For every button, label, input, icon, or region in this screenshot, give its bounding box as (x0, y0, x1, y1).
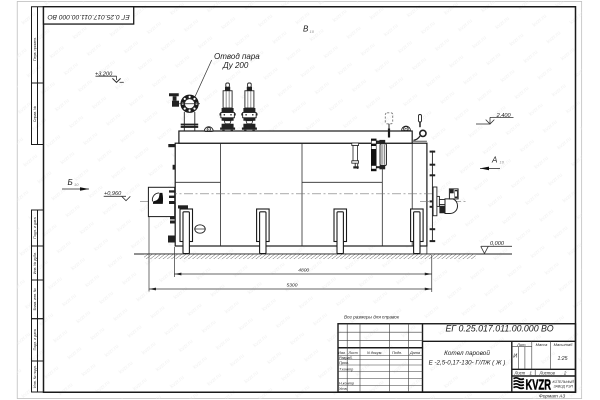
svg-text:1:25: 1:25 (557, 356, 567, 362)
svg-text:10: 10 (310, 29, 315, 34)
svg-text:Подп. и дата: Подп. и дата (33, 217, 37, 238)
svg-text:Изм.: Изм. (338, 351, 345, 355)
svg-text:Лист: Лист (514, 371, 526, 376)
svg-text:Н.контр: Н.контр (339, 381, 354, 385)
svg-text:KVZR: KVZR (526, 378, 552, 394)
svg-text:Утв.: Утв. (339, 387, 348, 391)
svg-text:Е -2,5-0,17-130- Г/ЛЖ ( Ж ): Е -2,5-0,17-130- Г/ЛЖ ( Ж ) (429, 360, 506, 367)
svg-text:Взам. инв. №: Взам. инв. № (33, 288, 37, 310)
svg-text:Котел паровой: Котел паровой (444, 349, 490, 357)
svg-text:Отвод пара: Отвод пара (214, 52, 260, 61)
svg-text:Т.контр: Т.контр (339, 367, 353, 371)
svg-text:КОТЕЛЬНЫЙ: КОТЕЛЬНЫЙ (553, 380, 575, 384)
svg-text:А: А (491, 156, 497, 165)
svg-text:И: И (513, 354, 517, 360)
svg-text:Все размеры для справок: Все размеры для справок (344, 315, 400, 320)
svg-text:10: 10 (500, 160, 505, 165)
svg-text:В: В (303, 25, 309, 34)
svg-text:Перв. примен.: Перв. примен. (33, 37, 37, 61)
svg-text:ЕГ 0.25.017.011.00.000 ВО: ЕГ 0.25.017.011.00.000 ВО (445, 324, 553, 334)
svg-text:Подп.: Подп. (392, 351, 402, 355)
svg-text:Лист: Лист (348, 351, 358, 355)
svg-text:5300: 5300 (287, 282, 298, 288)
svg-text:Формат А3: Формат А3 (539, 394, 566, 400)
svg-text:1: 1 (530, 371, 532, 376)
svg-text:Подп. и дата: Подп. и дата (33, 329, 37, 350)
svg-text:4800: 4800 (298, 268, 309, 274)
svg-text:Б: Б (68, 178, 73, 187)
svg-text:Масса: Масса (536, 342, 549, 347)
svg-text:Инв. № подл.: Инв. № подл. (33, 365, 37, 387)
svg-text:2,400: 2,400 (496, 113, 512, 119)
svg-text:10: 10 (74, 182, 79, 187)
svg-text:Ду 200: Ду 200 (222, 61, 249, 70)
svg-text:ЕГ 0.25.017.011.00.000 ВО: ЕГ 0.25.017.011.00.000 ВО (47, 13, 130, 20)
svg-text:Справ. №: Справ. № (33, 106, 37, 122)
svg-text:Дата: Дата (409, 351, 420, 355)
svg-text:Разраб.: Разраб. (339, 356, 353, 360)
svg-text:Листов: Листов (539, 371, 556, 376)
svg-text:N докум.: N докум. (367, 351, 382, 355)
svg-text:Пров.: Пров. (339, 361, 349, 365)
svg-text:Инв. № дубл.: Инв. № дубл. (33, 252, 37, 274)
svg-text:Масштаб: Масштаб (554, 342, 573, 347)
svg-text:ЗАВОД РЭП: ЗАВОД РЭП (554, 384, 574, 388)
svg-text:Лит.: Лит. (516, 342, 526, 347)
